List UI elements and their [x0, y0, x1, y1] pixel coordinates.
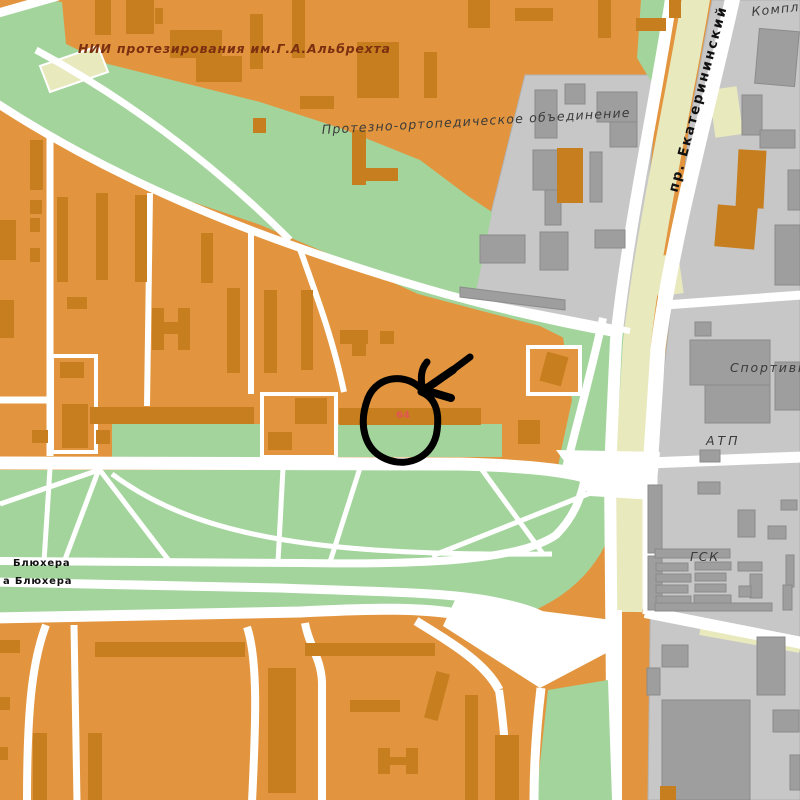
label-house-number: 64 [396, 410, 410, 421]
green-wedge-bottom [536, 680, 612, 800]
map-canvas[interactable]: НИИ протезирования им.Г.А.Альбрехта Прот… [0, 0, 800, 800]
label-institute: НИИ протезирования им.Г.А.Альбрехта [78, 41, 391, 56]
label-blyukhera-lower: а Блюхера [3, 576, 72, 587]
label-atp: АТП [705, 433, 741, 448]
label-blyukhera-upper: Блюхера [13, 558, 70, 569]
label-sportivn: Спортивн [730, 360, 800, 375]
label-gsk: ГСК [690, 549, 720, 564]
